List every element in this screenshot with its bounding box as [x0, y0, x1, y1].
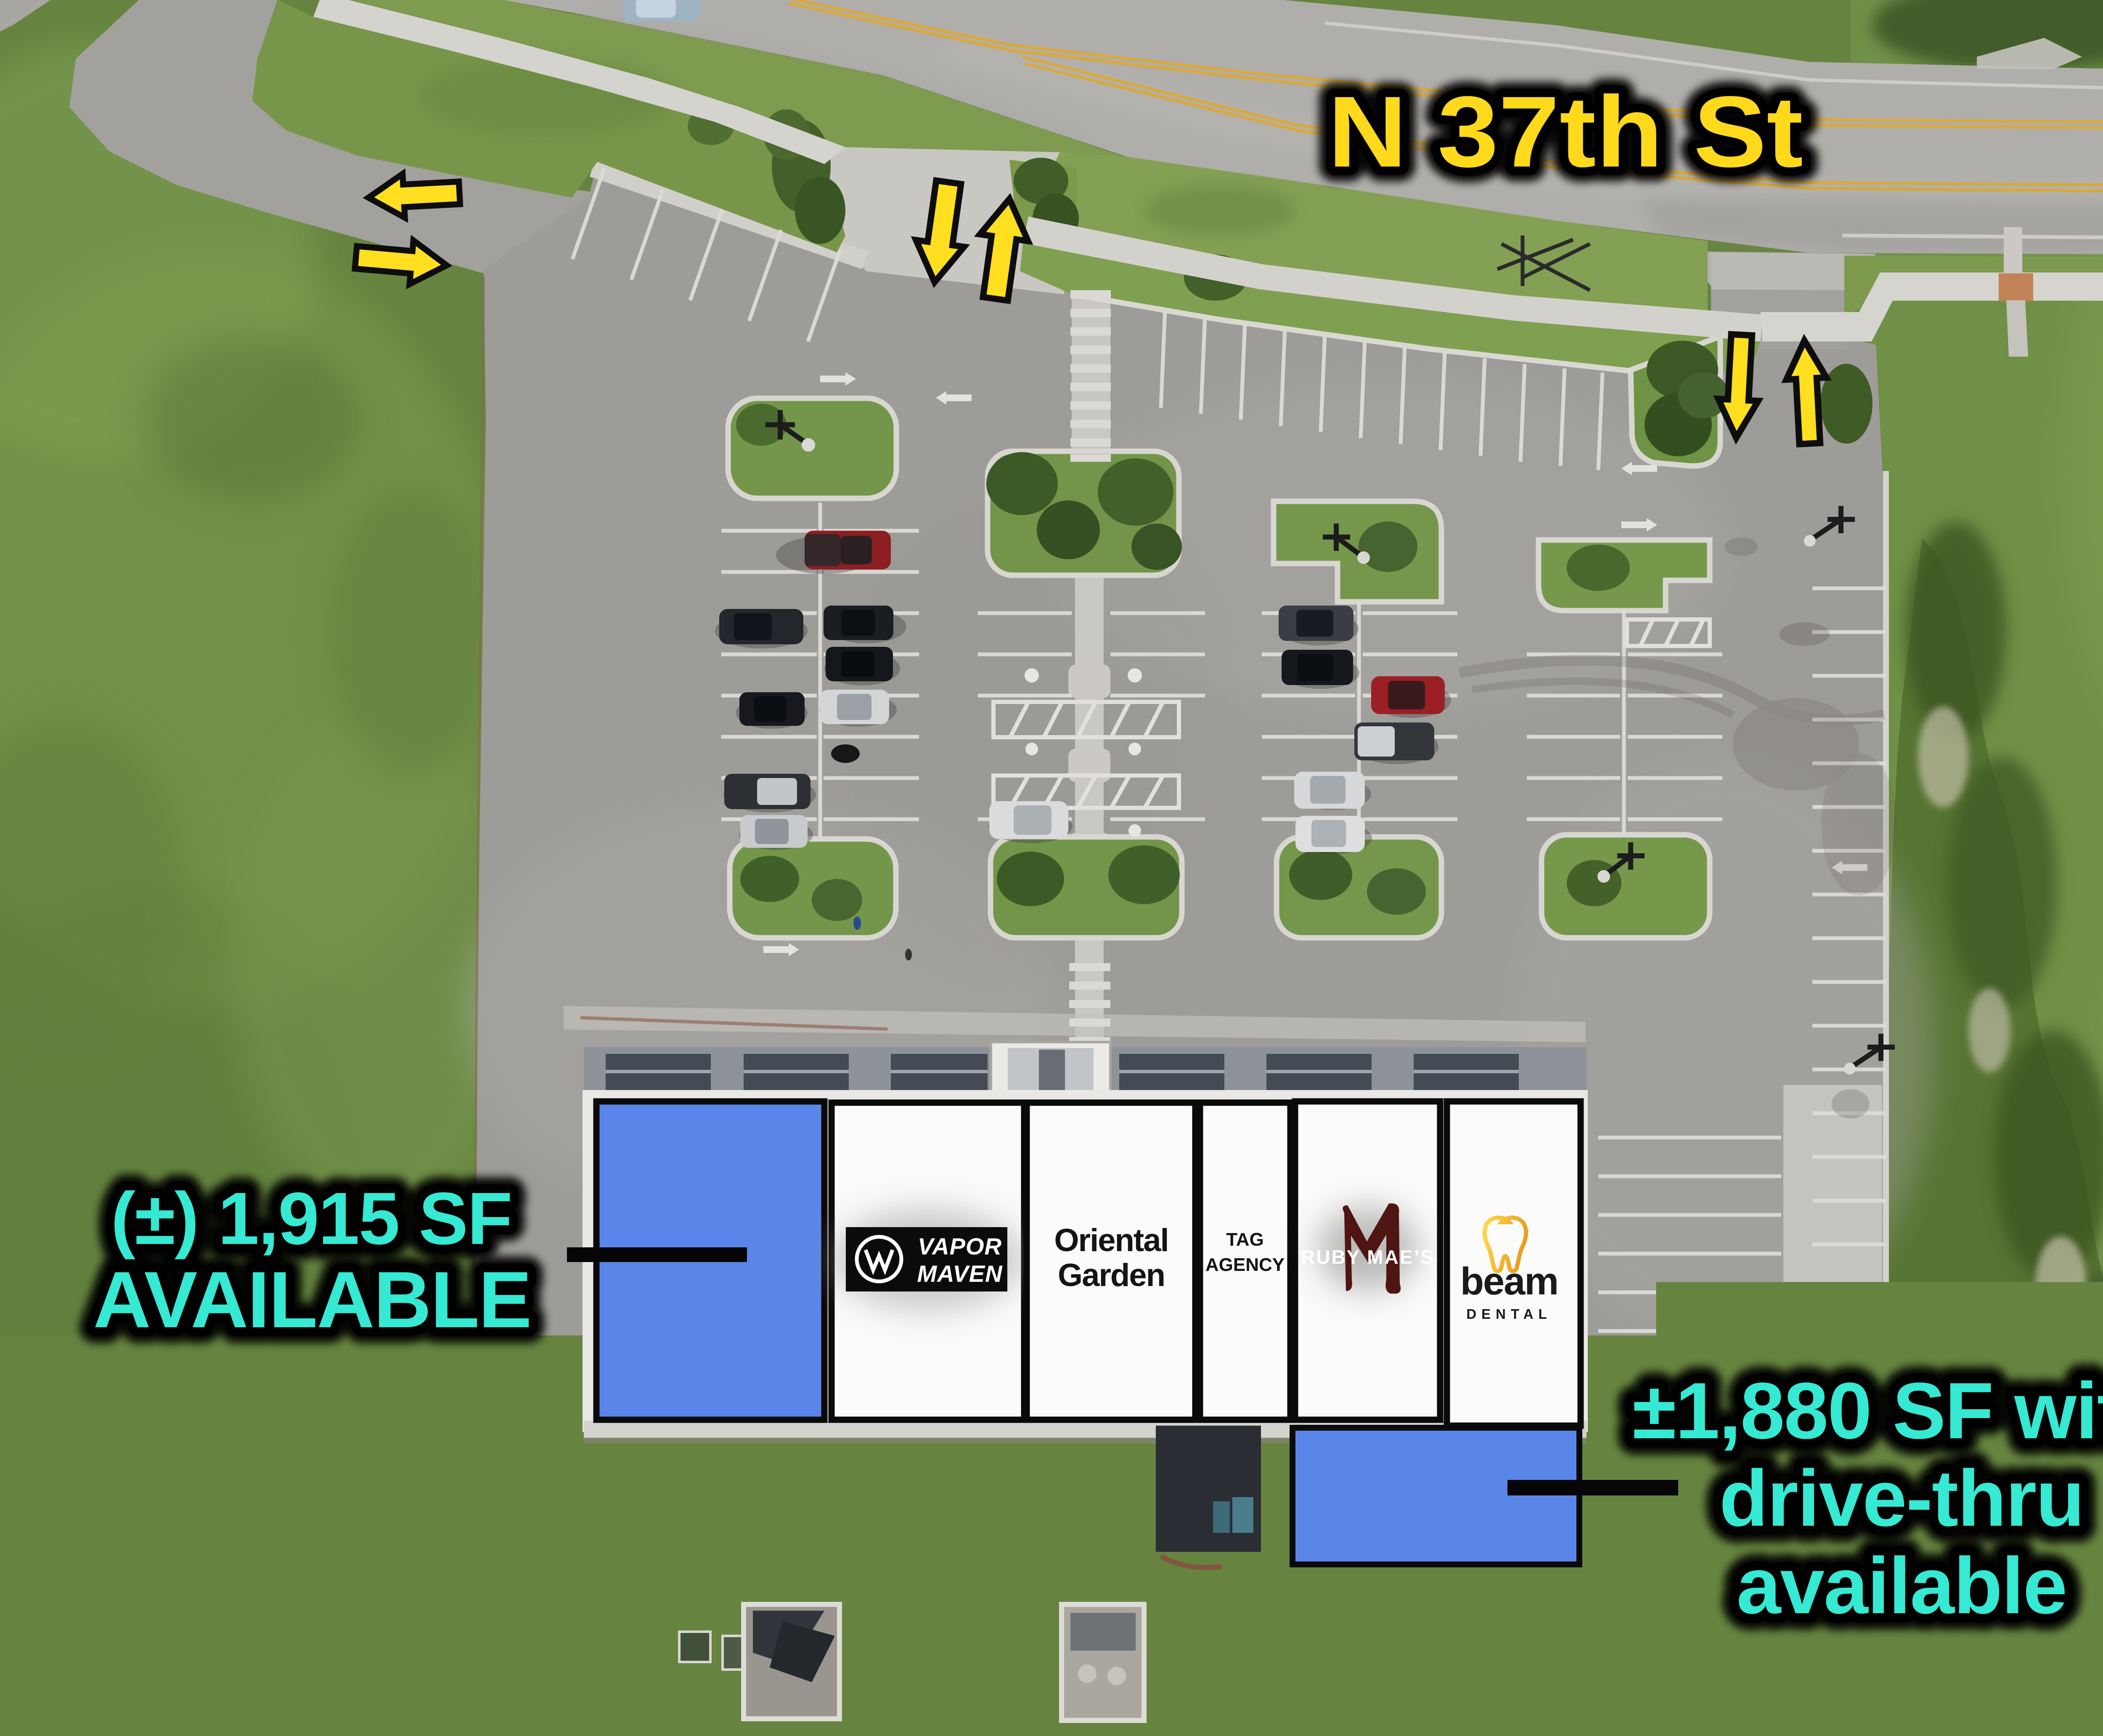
svg-text:MAVEN: MAVEN [917, 1260, 1003, 1287]
svg-text:AVAILABLE: AVAILABLE [93, 1255, 531, 1344]
svg-text:N 37th St: N 37th St [1328, 75, 1803, 188]
svg-text:Garden: Garden [1058, 1257, 1165, 1293]
svg-text:beam: beam [1460, 1260, 1558, 1303]
svg-text:Oriental: Oriental [1054, 1223, 1168, 1258]
svg-text:available: available [1737, 1541, 2067, 1630]
svg-text:drive-thru: drive-thru [1719, 1454, 2084, 1543]
svg-text:±1,880 SF with: ±1,880 SF with [1632, 1366, 2103, 1455]
svg-text:DENTAL: DENTAL [1466, 1306, 1552, 1322]
svg-text:RUBY MAE’S: RUBY MAE’S [1301, 1246, 1435, 1268]
svg-text:(±) 1,915 SF: (±) 1,915 SF [111, 1178, 512, 1260]
svg-text:AGENCY: AGENCY [1205, 1254, 1285, 1275]
svg-text:VAPOR: VAPOR [918, 1233, 1002, 1260]
svg-text:TAG: TAG [1226, 1229, 1264, 1250]
